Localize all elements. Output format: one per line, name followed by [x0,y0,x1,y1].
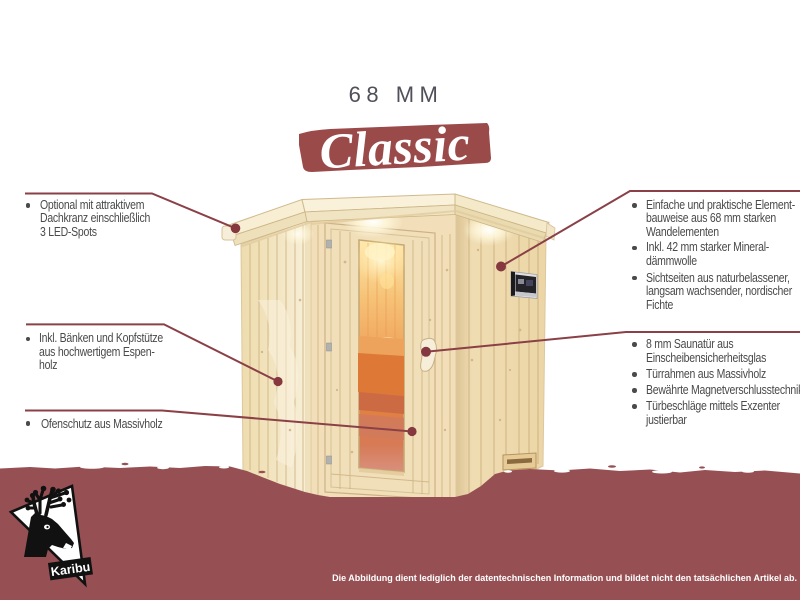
svg-text:Classic: Classic [318,114,472,179]
